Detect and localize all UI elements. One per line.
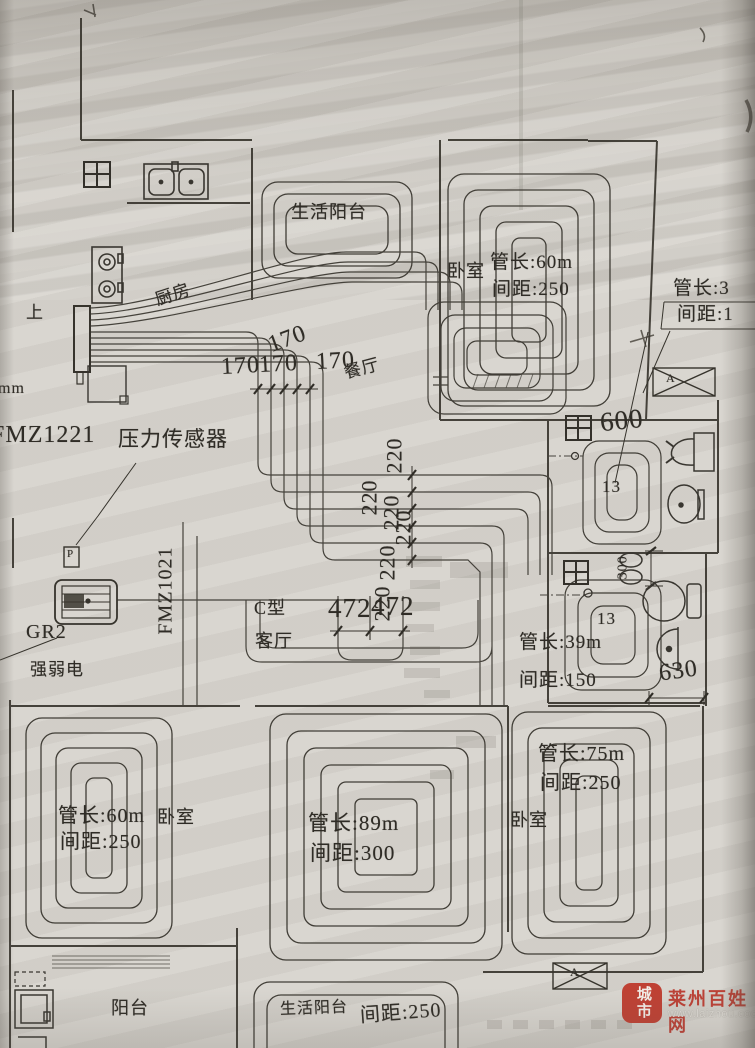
label-unit-partial: mm [0, 381, 25, 398]
label-balcony-top: 生活阳台 [291, 203, 367, 222]
label-balcony-bottom-right: 生活阳台 [280, 1000, 349, 1019]
dim-170-b: 170 [258, 351, 298, 378]
watermark-seal-text: 城市 [634, 986, 650, 1020]
label-spacing-right-edge: 间距:1 [677, 305, 734, 325]
dim-630: 630 [657, 656, 699, 686]
label-manifold-model-2: FMZ1021 [156, 536, 177, 646]
label-living: 客厅 [255, 632, 293, 651]
label-spacing-bedroom-br: 间距:250 [540, 773, 622, 794]
dim-472-a: 472 [328, 594, 372, 622]
label-spacing-bath-lower: 间距:150 [519, 671, 597, 691]
label-pipe-length-bedroom-tr: 管长:60m [490, 253, 573, 273]
gas-stove [92, 247, 123, 303]
label-spacing-bedroom-tr: 间距:250 [492, 280, 570, 300]
label-bedroom-bl: 卧室 [157, 808, 195, 827]
label-manifold-model: FMZ1221 [0, 423, 95, 448]
dim-170-a: 170 [220, 353, 260, 380]
label-balcony-bottom-left: 阳台 [111, 999, 149, 1018]
dim-600: 600 [599, 404, 645, 437]
label-spacing-living-bottom: 间距:300 [310, 842, 395, 864]
ink-smudge-right [746, 100, 751, 132]
floor-heating-plan-photo: 生活阳台 卧室 管长:60m 间距:250 管长:3 间距:1 厨房 170 1… [0, 0, 755, 1048]
dim-220-f: 220 [370, 581, 393, 627]
watermark-seal: 城市 [622, 983, 662, 1023]
crossing-hatch-marks [52, 374, 533, 968]
toilet-lower-icon [643, 581, 701, 621]
washing-machine-icon [15, 972, 53, 1048]
window-top-left-icon [84, 162, 110, 187]
dim-220-b: 220 [357, 475, 380, 521]
kitchen-sink [144, 162, 208, 199]
dim-220-a: 220 [382, 433, 405, 479]
label-section-a-bottom: A [570, 966, 580, 979]
heat-source-unit [55, 580, 117, 624]
toilet-upper-icon [668, 485, 704, 523]
label-living-shape: C型 [254, 599, 286, 618]
label-bedroom-top-right: 卧室 [447, 262, 485, 281]
label-pipe-length-bedroom-br: 管长:75m [538, 744, 625, 765]
label-pressure-symbol: P [67, 549, 74, 561]
label-coil-bath-upper: 13 [602, 478, 621, 496]
washbasin-upper-icon [666, 433, 714, 471]
label-spacing-bedroom-bl: 间距:250 [60, 832, 142, 853]
section-marker-a-top [653, 368, 715, 396]
label-coil-bath-lower: 13 [597, 610, 616, 628]
label-heat-source: GR2 [26, 622, 67, 643]
coil-bath-upper [583, 441, 661, 544]
label-pipe-length-bath-lower: 管长:39m [519, 633, 602, 653]
dim-220-e: 220 [375, 540, 398, 586]
coil-living-bottom [270, 714, 502, 960]
label-bedroom-br: 卧室 [510, 811, 548, 830]
coil-bedroom-bottom-left [26, 718, 172, 938]
label-pipe-length-right-edge: 管长:3 [673, 279, 730, 299]
label-section-a-top: A [666, 372, 676, 385]
watermark-site-url: www.laizhou.cooo.cn [668, 1008, 755, 1020]
label-pressure-sensor: 压力传感器 [118, 428, 228, 450]
label-pipe-length-living-bottom: 管长:89m [308, 812, 399, 834]
label-direction-up: 上 [26, 304, 44, 322]
label-electrical: 强弱电 [30, 661, 84, 679]
dim-300: 300 [617, 544, 632, 590]
cabinet-tab [120, 396, 128, 404]
section-marker-a-bottom [553, 963, 607, 989]
label-pipe-length-bedroom-bl: 管长:60m [58, 806, 145, 827]
